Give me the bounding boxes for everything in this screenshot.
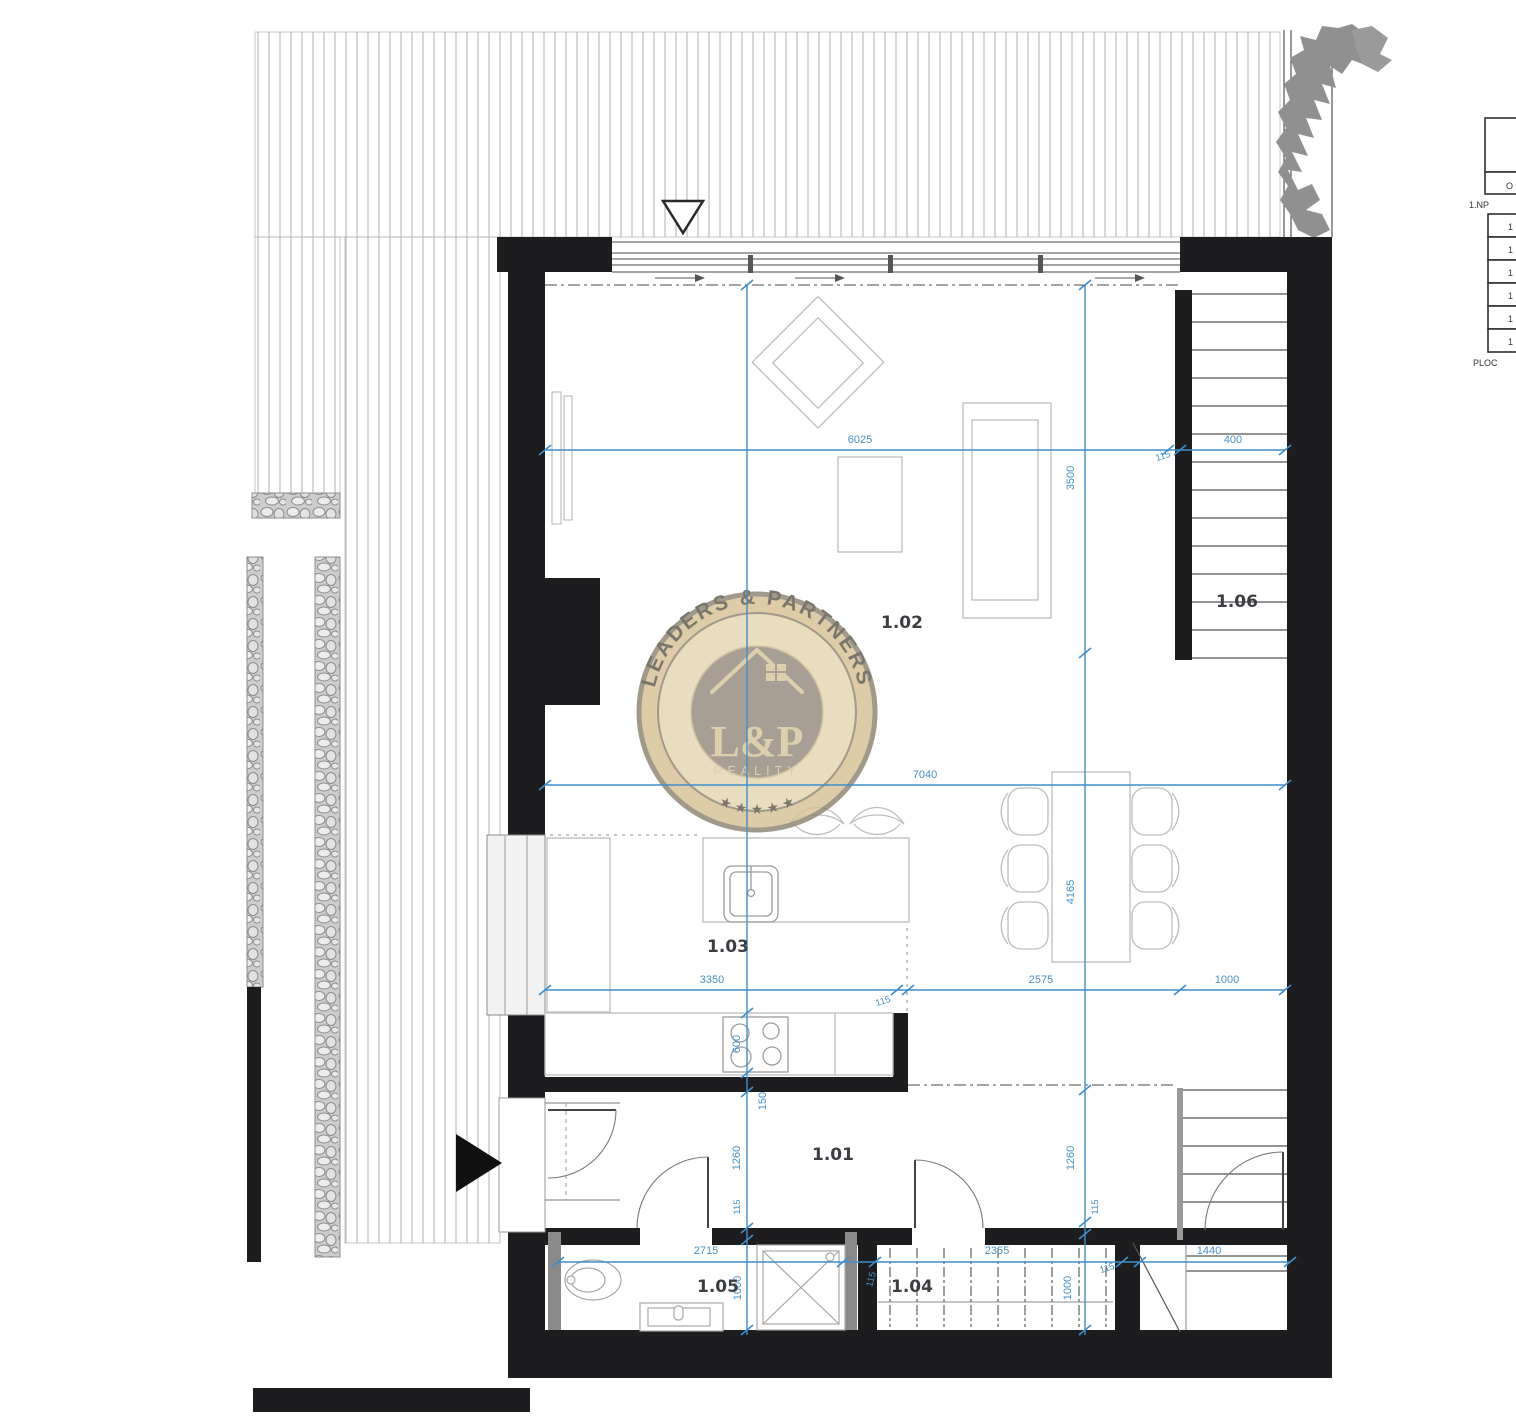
dim-label: 600 xyxy=(731,1035,743,1053)
dim-label: 2355 xyxy=(985,1245,1009,1257)
room-label-wardrobe: 1.04 xyxy=(891,1277,933,1297)
legend-row: 1 xyxy=(1508,337,1513,347)
dim-label: 3500 xyxy=(1065,466,1077,490)
dim-label: 115 xyxy=(1098,1261,1116,1276)
burner-icon xyxy=(763,1023,779,1039)
entrance-door-swing xyxy=(548,1110,616,1178)
dim-label: 1260 xyxy=(1065,1146,1077,1170)
floor-plan-drawing: LEADERS & PARTNERS L&P REALITY ★ ★ ★ ★ ★… xyxy=(0,0,1516,1422)
kitchen-window xyxy=(487,835,545,1015)
legend-row: 1 xyxy=(1508,314,1513,324)
legend-cell: O xyxy=(1506,181,1513,191)
wall-kitchen-south xyxy=(545,1077,908,1092)
mullion xyxy=(748,255,753,273)
armchair-seat xyxy=(773,318,864,409)
dim-label: 6025 xyxy=(848,434,872,446)
dim-label: 1000 xyxy=(1062,1276,1074,1300)
wall-bottom xyxy=(508,1330,1332,1378)
dim-label: 1440 xyxy=(1197,1245,1221,1257)
staircase-lower xyxy=(1133,1088,1287,1332)
vanity-tap-icon xyxy=(674,1306,683,1320)
wall-wardrobe-stair xyxy=(1115,1232,1140,1330)
dimension-labels: 6025 115 400 7040 3350 115 2575 1000 271… xyxy=(694,434,1242,1300)
gravel-bar-top xyxy=(252,493,340,518)
watermark-badge: LEADERS & PARTNERS L&P REALITY ★ ★ ★ ★ ★ xyxy=(637,586,876,830)
badge-monogram: L&P xyxy=(711,717,804,766)
mullion xyxy=(888,255,893,273)
dining-table xyxy=(1052,772,1130,962)
bathroom-door-swing xyxy=(637,1157,708,1228)
toilet-bowl xyxy=(571,1268,605,1292)
glazed-wall xyxy=(612,242,1180,273)
wall-shower-side xyxy=(845,1232,857,1330)
dim-label: 3350 xyxy=(700,974,724,986)
coffee-table xyxy=(838,457,902,552)
room-label-staircase: 1.06 xyxy=(1216,592,1258,612)
deck-left-main xyxy=(345,237,500,1243)
deck-left-upper xyxy=(255,237,340,493)
legend-floor-label: 1.NP xyxy=(1469,200,1489,210)
legend-row: 1 xyxy=(1508,268,1513,278)
wall-pillar xyxy=(893,1013,908,1092)
deck-top xyxy=(255,32,1280,237)
toilet-flush xyxy=(567,1276,575,1284)
stair-wall-thin xyxy=(1177,1088,1183,1240)
stair-door-swing xyxy=(1205,1152,1283,1230)
doors xyxy=(456,1098,1283,1232)
dining-chair xyxy=(1132,845,1179,892)
dim-label: 400 xyxy=(1224,434,1242,446)
floor-plan-page: LEADERS & PARTNERS L&P REALITY ★ ★ ★ ★ ★… xyxy=(0,0,1516,1422)
wall-left-upper xyxy=(508,237,545,835)
room-label-living: 1.02 xyxy=(881,613,923,633)
wall-stair-side xyxy=(1175,290,1192,660)
dim-label: 115 xyxy=(1154,449,1172,464)
dim-label: 7040 xyxy=(913,769,937,781)
dining-chair xyxy=(1001,902,1048,949)
radiator xyxy=(564,396,572,520)
dim-label: 115 xyxy=(1090,1199,1101,1214)
sofa-seat xyxy=(972,420,1038,600)
wardrobe-door-swing xyxy=(915,1160,983,1228)
room-label-bathroom: 1.05 xyxy=(697,1277,739,1297)
wall-fireplace-stub xyxy=(545,578,600,705)
dining-chair xyxy=(1132,788,1179,835)
bar-stool xyxy=(850,808,904,835)
gravel-bar-left xyxy=(247,557,263,987)
kitchen-island xyxy=(703,838,909,922)
dining-chair xyxy=(1132,902,1179,949)
legend-table: O 1.NP 1 1 1 1 1 1 PLOC xyxy=(1469,118,1516,368)
wall-right xyxy=(1287,237,1332,1378)
dim-label: 4165 xyxy=(1065,880,1077,904)
sliding-direction-arrows xyxy=(655,274,1145,282)
dim-label: 1000 xyxy=(1215,974,1239,986)
faucet-icon xyxy=(748,890,755,897)
legend-row: 1 xyxy=(1508,245,1513,255)
dim-label: 150 xyxy=(757,1092,769,1110)
legend-area-label: PLOC xyxy=(1473,358,1498,368)
wall-hall-b xyxy=(712,1228,912,1245)
dim-label: 2715 xyxy=(694,1245,718,1257)
kitchen-counter-left xyxy=(547,838,610,1012)
dim-label: 115 xyxy=(732,1199,743,1214)
legend-row: 1 xyxy=(1508,291,1513,301)
radiator xyxy=(552,392,561,524)
badge-caption: REALITY xyxy=(713,764,800,778)
entrance-opening xyxy=(499,1098,545,1232)
gravel-bar-right xyxy=(315,557,340,1257)
dim-label: 1260 xyxy=(731,1146,743,1170)
site-wall-bottom xyxy=(253,1388,530,1412)
dim-label: 2575 xyxy=(1029,974,1053,986)
wall-left-lower xyxy=(508,1232,545,1330)
kitchen-counter-south xyxy=(545,1013,893,1075)
room-label-hallway: 1.01 xyxy=(812,1145,854,1165)
shower-drain-icon xyxy=(826,1253,834,1261)
dining-chair xyxy=(1001,788,1048,835)
stair-break-line xyxy=(1133,1243,1180,1332)
wall-left-mid xyxy=(508,1015,545,1098)
dining-chair xyxy=(1001,845,1048,892)
mullion xyxy=(1038,255,1043,273)
tree-icon xyxy=(1276,24,1392,238)
burner-icon xyxy=(763,1047,781,1065)
site-wall-left xyxy=(247,987,261,1262)
dim-label: 115 xyxy=(874,994,892,1009)
legend-row: 1 xyxy=(1508,222,1513,232)
wall-bath-left xyxy=(548,1232,561,1330)
room-label-kitchen: 1.03 xyxy=(707,937,749,957)
